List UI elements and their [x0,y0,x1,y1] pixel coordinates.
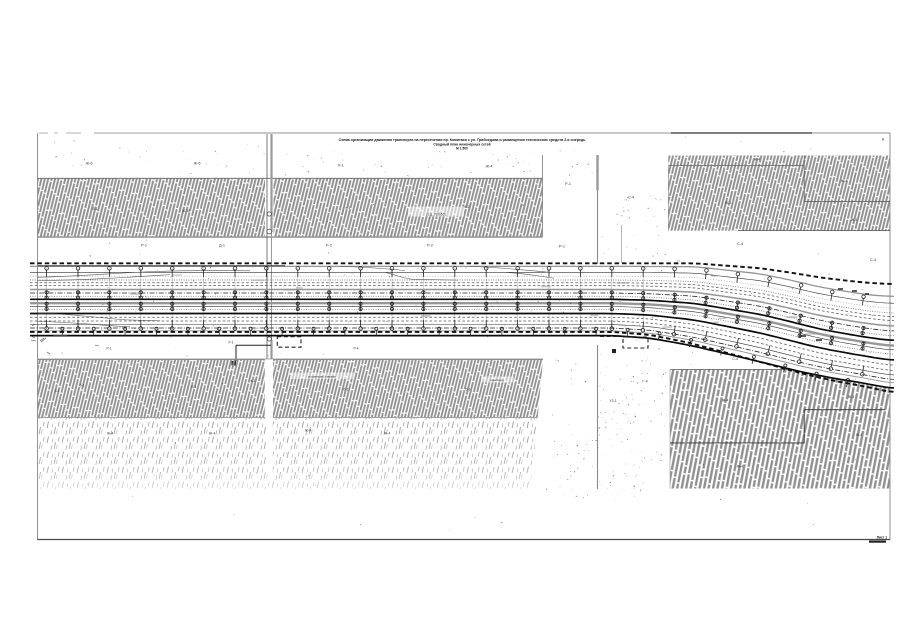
svg-text:Ж-10: Ж-10 [182,209,190,213]
svg-text:Лист 1: Лист 1 [877,535,887,539]
svg-text:К-1: К-1 [338,164,344,168]
svg-text:Ж-4: Ж-4 [856,433,863,437]
svg-text:Ж-1: Ж-1 [725,201,732,205]
svg-text:Р-1: Р-1 [229,341,234,345]
svg-text:в-1: в-1 [251,379,256,383]
svg-text:б-1: б-1 [344,388,349,392]
svg-text:С-4: С-4 [732,357,738,361]
svg-text:Ж-4: Ж-4 [754,158,761,162]
svg-text:Ж-4: Ж-4 [722,399,729,403]
svg-text:М 1:500: М 1:500 [456,147,468,151]
svg-text:Ж-4: Ж-4 [305,429,312,433]
svg-text:С-4: С-4 [628,196,634,200]
svg-text:Ж-4: Ж-4 [107,432,114,436]
svg-text:Р-1: Р-1 [565,182,571,186]
svg-text:8: 8 [882,137,885,142]
svg-text:Ж-6: Ж-6 [86,162,93,166]
svg-text:б-1: б-1 [93,207,98,211]
svg-text:условными знаками: условными знаками [308,375,336,379]
svg-text:С-4: С-4 [870,258,876,262]
svg-text:Схема организации движения тра: Схема организации движения транспорта на… [339,138,587,142]
svg-text:Ж-6: Ж-6 [194,162,201,166]
svg-text:б-1: б-1 [55,389,60,393]
svg-text:УЗ-1: УЗ-1 [609,399,616,403]
svg-text:Р-1: Р-1 [141,244,147,248]
svg-text:Ж-4: Ж-4 [737,465,744,469]
svg-text:Р-2: Р-2 [427,244,433,248]
svg-text:Ж-4: Ж-4 [841,179,848,183]
svg-text:Ж-4: Ж-4 [384,432,391,436]
svg-text:Р-2: Р-2 [326,244,332,248]
svg-text:б-2: б-2 [465,205,470,209]
svg-text:о-1: о-1 [346,206,351,210]
svg-text:Ж-4: Ж-4 [486,165,493,169]
svg-text:Ж-4: Ж-4 [848,395,855,399]
svg-text:б-1: б-1 [80,384,85,388]
svg-text:Р-1: Р-1 [559,245,565,249]
svg-text:б-1: б-1 [466,388,471,392]
svg-text:Ж-4: Ж-4 [851,218,858,222]
svg-text:(1 д. 70 б-50): (1 д. 70 б-50) [426,213,445,217]
svg-text:Р-1: Р-1 [107,347,112,351]
svg-text:Р-4: Р-4 [354,347,359,351]
svg-text:нанесено: нанесено [490,378,503,382]
svg-text:Д-1: Д-1 [219,244,225,248]
svg-text:Г-4: Г-4 [642,380,647,384]
svg-text:Ж-4: Ж-4 [209,432,216,436]
svg-text:б-1: б-1 [192,385,197,389]
svg-text:С-4: С-4 [737,242,743,246]
